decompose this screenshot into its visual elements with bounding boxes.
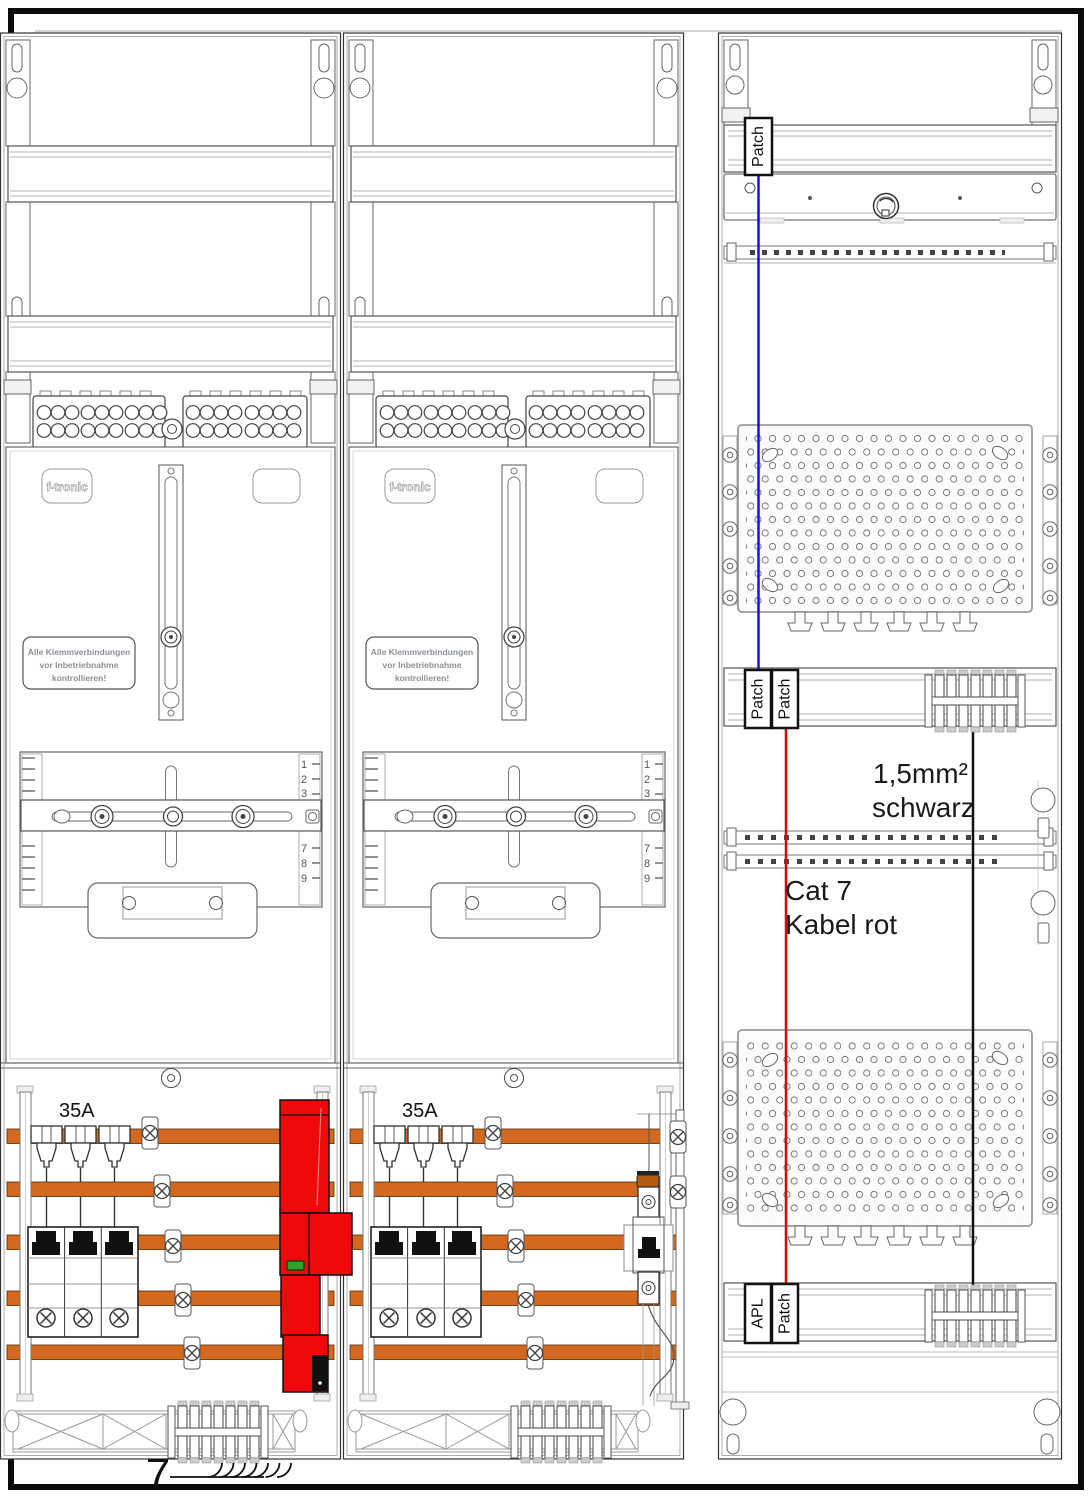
sls-switch-red [280, 1100, 352, 1392]
outgoing-wires [170, 1463, 291, 1477]
patch-label-top: Patch [745, 118, 772, 175]
lock-panel [724, 174, 1056, 223]
comms-column: Patch Patch Patch APL Patch 1,5mm² schwa… [719, 33, 1062, 1459]
diagram-canvas: f-tronic Alle Klemmverbindungen [0, 0, 1092, 1500]
svg-text:schwarz: schwarz [872, 792, 975, 823]
mounting-bar [676, 1110, 684, 1406]
sls-toggle [312, 1355, 328, 1391]
svg-text:Patch: Patch [777, 679, 794, 720]
apl-label: APL [745, 1284, 771, 1343]
wire-count-label: 7 [146, 1450, 170, 1499]
cabinet-wiring-diagram: f-tronic Alle Klemmverbindungen [0, 0, 1092, 1500]
perforated-plate-upper [723, 425, 1057, 631]
patch-label-bottom: Patch [772, 1284, 798, 1343]
svg-text:Patch: Patch [777, 1293, 794, 1334]
svg-text:Cat 7: Cat 7 [785, 875, 852, 906]
patch-label-mid-left: Patch [745, 670, 771, 728]
sls-indicator-led [287, 1261, 304, 1270]
svg-text:APL: APL [750, 1298, 767, 1328]
patch-label-mid-right: Patch [772, 670, 798, 728]
svg-text:Patch: Patch [750, 679, 767, 720]
svg-text:Patch: Patch [750, 126, 767, 167]
svg-text:Kabel rot: Kabel rot [785, 909, 897, 940]
svg-text:1,5mm²: 1,5mm² [873, 758, 968, 789]
perforated-plate-lower [723, 1030, 1057, 1245]
device-toggle [642, 1237, 656, 1249]
fuse-cap [637, 1175, 659, 1187]
